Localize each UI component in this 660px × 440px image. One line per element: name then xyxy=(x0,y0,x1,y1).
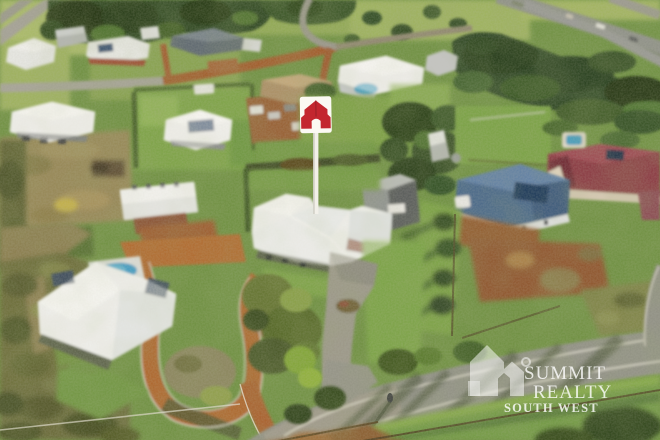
svg-text:SUMMIT: SUMMIT xyxy=(524,363,606,384)
svg-text:REALTY: REALTY xyxy=(533,382,612,403)
svg-text:SOUTH WEST: SOUTH WEST xyxy=(504,401,599,415)
